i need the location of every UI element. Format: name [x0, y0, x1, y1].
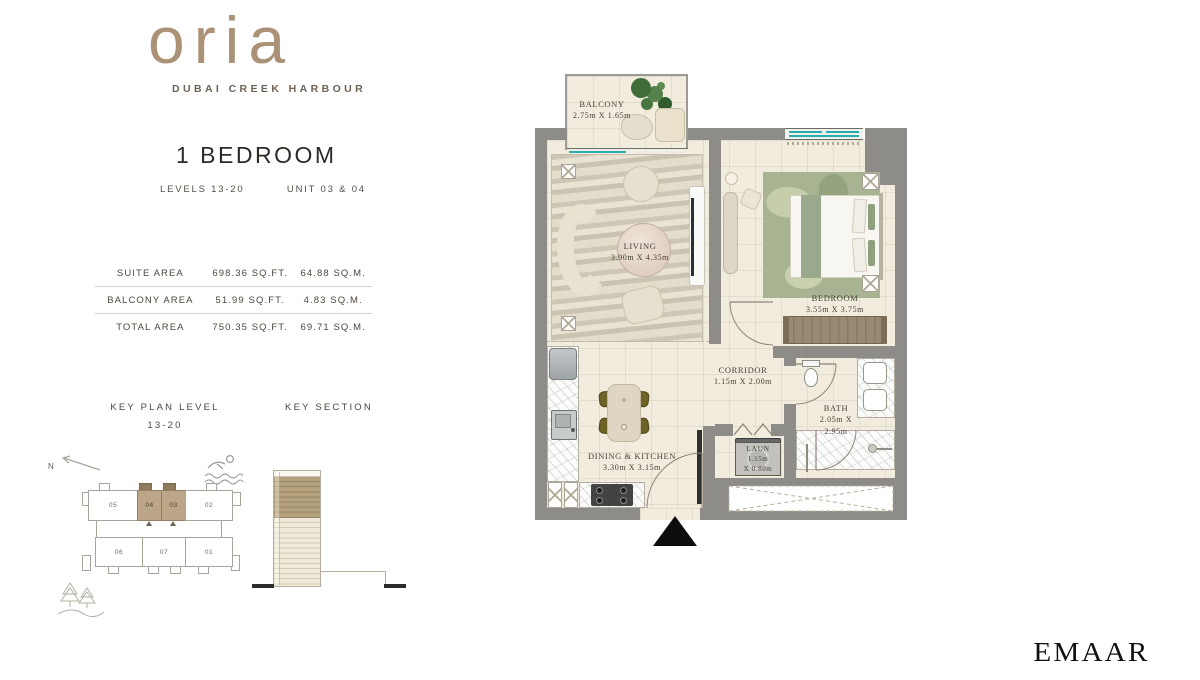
units-label: UNIT 03 & 04	[287, 184, 366, 195]
burner	[596, 497, 603, 504]
wall	[535, 128, 547, 520]
shower-head	[868, 444, 877, 453]
emaar-logo: EMAAR	[1034, 637, 1150, 668]
wall	[895, 128, 907, 520]
keyplan-tab	[148, 566, 159, 574]
towel-rail	[806, 444, 808, 472]
fridge	[549, 348, 577, 380]
unit-meta: LEVELS 13-20 UNIT 03 & 04	[160, 184, 366, 195]
tower-lower-floors	[274, 518, 320, 586]
service-shaft	[548, 482, 562, 508]
table-decor	[621, 424, 627, 430]
bedroom-window-glass	[789, 131, 822, 133]
area-sqft: 698.36 SQ.FT.	[206, 268, 295, 279]
floorplan-brochure-page: oria DUBAI CREEK HARBOUR 1 BEDROOM LEVEL…	[0, 0, 1200, 680]
bedroom-window-glass	[826, 131, 859, 133]
wall-bath-laundry	[784, 404, 796, 488]
table-row: TOTAL AREA 750.35 SQ.FT. 69.71 SQ.M.	[95, 314, 372, 341]
entry-door	[647, 453, 702, 508]
headboard	[879, 193, 883, 280]
pillow	[852, 199, 867, 234]
shower-arm	[877, 448, 892, 450]
bedroom-window-frame	[785, 128, 863, 140]
unit-type-title: 1 BEDROOM	[176, 142, 337, 169]
balcony-lounger	[655, 108, 685, 142]
side-table	[561, 164, 576, 179]
service-shaft	[564, 482, 578, 508]
bedroom-label: BEDROOM 3.55m X 3.75m	[775, 292, 895, 316]
oria-logo: oria	[148, 2, 348, 78]
cushion	[868, 204, 875, 230]
hall-bench	[723, 192, 738, 274]
nightstand	[862, 173, 879, 190]
burner	[620, 497, 627, 504]
area-sqm: 69.71 SQ.M.	[294, 322, 372, 333]
key-plan-range: 13-20	[95, 420, 235, 431]
keyplan-unit-03: 03	[161, 490, 186, 521]
keyplan-core	[96, 520, 222, 538]
balcony-label: BALCONY 2.75m X 1.65m	[561, 98, 643, 122]
vent-hatch	[787, 142, 861, 145]
side-table	[561, 316, 576, 331]
pillow	[852, 238, 867, 273]
ground-bar	[384, 584, 406, 588]
living-label: LIVING 3.90m X 4.35m	[590, 240, 690, 264]
key-section-title: KEY SECTION	[264, 402, 394, 413]
north-label: N	[48, 462, 54, 471]
brand-tagline: DUBAI CREEK HARBOUR	[172, 83, 366, 95]
toilet-bowl	[804, 368, 818, 387]
wardrobe-end	[881, 316, 887, 344]
sink-bowl	[555, 414, 571, 428]
tower-highlight-floors	[274, 477, 320, 518]
burner	[620, 487, 627, 494]
trees-icon	[56, 580, 106, 622]
floor-plan: BALCONY 2.75m X 1.65m	[535, 58, 907, 558]
dining-table	[607, 384, 641, 442]
keyplan-tab	[82, 555, 91, 571]
area-sqft: 51.99 SQ.FT.	[206, 295, 295, 306]
wall-bedroom-corridor	[773, 346, 907, 358]
nightstand	[862, 275, 879, 292]
keyplan-tab	[198, 566, 209, 574]
tower-silhouette	[273, 470, 321, 587]
wall-laundry-stub	[715, 424, 733, 436]
area-sqft: 750.35 SQ.FT.	[206, 322, 295, 333]
podium-outline	[321, 571, 386, 587]
key-plan-title: KEY PLAN LEVEL	[95, 402, 235, 413]
north-arrow-icon	[56, 452, 104, 474]
wall	[688, 128, 787, 140]
table-decor	[622, 398, 626, 402]
pendant-lamp	[725, 172, 738, 185]
keyplan-unit-05: 05	[88, 490, 138, 521]
wall	[535, 508, 640, 520]
area-table: SUITE AREA 698.36 SQ.FT. 64.88 SQ.M. BAL…	[95, 260, 372, 341]
burner	[596, 487, 603, 494]
wall-living-bedroom	[709, 140, 721, 344]
area-label: BALCONY AREA	[95, 295, 206, 306]
swimmer-icon	[203, 452, 245, 486]
bedroom-door	[730, 302, 773, 345]
levels-label: LEVELS 13-20	[160, 184, 244, 195]
laundry-bifold-door	[733, 422, 773, 436]
keyplan-tab	[170, 566, 181, 574]
keyplan-unit-02: 02	[185, 490, 233, 521]
ac-ledge-hatch	[728, 485, 894, 512]
area-label: TOTAL AREA	[95, 322, 206, 333]
ground-bar	[252, 584, 274, 588]
entrance-marker	[653, 516, 697, 546]
wardrobe	[783, 316, 887, 344]
bath-label: BATH 2.05m X 2.95m	[797, 402, 875, 438]
bed-runner	[801, 195, 821, 278]
wall-entry	[703, 426, 715, 508]
keyplan-entry-marker	[170, 521, 176, 526]
toilet-tank	[802, 360, 820, 367]
keyplan-entry-marker	[146, 521, 152, 526]
table-row: BALCONY AREA 51.99 SQ.FT. 4.83 SQ.M.	[95, 287, 372, 314]
wardrobe-end	[783, 316, 789, 344]
area-label: SUITE AREA	[95, 268, 206, 279]
bedroom-window-glass	[789, 135, 859, 137]
balcony-plant	[631, 78, 651, 98]
sink-basin	[863, 362, 887, 384]
cushion	[868, 240, 875, 266]
keyplan-unit-04: 04	[137, 490, 162, 521]
keyplan-unit-01: 01	[185, 537, 233, 567]
area-sqm: 64.88 SQ.M.	[294, 268, 372, 279]
keyplan-unit-07: 07	[142, 537, 186, 567]
keyplan-unit-06: 06	[95, 537, 143, 567]
table-row: SUITE AREA 698.36 SQ.FT. 64.88 SQ.M.	[95, 260, 372, 287]
living-dining-boundary	[547, 341, 709, 342]
area-sqm: 4.83 SQ.M.	[294, 295, 372, 306]
corridor-label: CORRIDOR 1.15m X 2.00m	[691, 364, 795, 388]
round-pouf	[623, 166, 659, 202]
balcony-slider-glass	[569, 151, 626, 154]
tv-screen	[691, 198, 694, 276]
keyplan-tab	[108, 566, 119, 574]
keyplan-tab	[232, 492, 241, 506]
laundry-label: LAUN 1.15m X 0.80m	[735, 442, 781, 476]
faucet	[571, 428, 575, 432]
